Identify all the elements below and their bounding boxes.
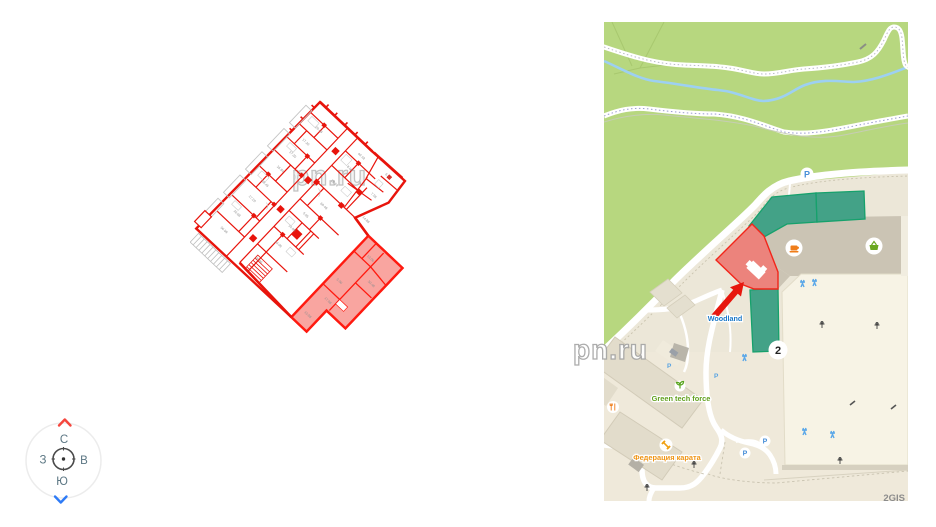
svg-text:P: P [743, 451, 748, 458]
svg-text:З: З [40, 455, 47, 467]
svg-text:P: P [763, 439, 768, 446]
svg-text:Green tech force: Green tech force [652, 394, 711, 403]
svg-text:P: P [667, 363, 672, 370]
svg-text:2GIS: 2GIS [883, 493, 905, 501]
svg-text:С: С [60, 434, 68, 446]
svg-text:P: P [714, 373, 719, 380]
svg-text:Ю: Ю [56, 476, 68, 488]
svg-text:14.88: 14.88 [361, 215, 370, 224]
svg-text:2: 2 [775, 345, 781, 357]
svg-text:Федерация карата: Федерация карата [633, 453, 701, 462]
svg-text:В: В [80, 455, 88, 467]
svg-text:Woodland: Woodland [708, 314, 743, 323]
svg-text:P: P [804, 170, 810, 180]
